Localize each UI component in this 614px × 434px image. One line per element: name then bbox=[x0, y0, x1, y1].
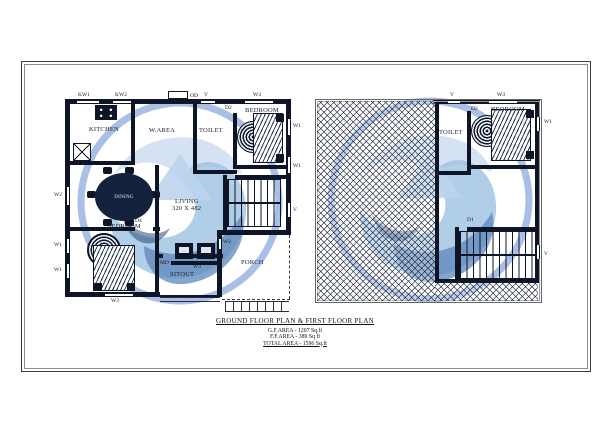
label-v: V bbox=[450, 92, 454, 98]
room-label-porch: PORCH bbox=[241, 259, 264, 266]
wall bbox=[131, 99, 135, 163]
crossed-box-icon bbox=[73, 143, 91, 161]
label-d2: D2 bbox=[225, 105, 232, 111]
window-marker-kw1 bbox=[77, 100, 99, 104]
label-md: MD bbox=[160, 260, 169, 266]
room-label-living-size: 320 X 482 bbox=[172, 205, 201, 212]
wall bbox=[193, 99, 197, 174]
label-d1: D1 bbox=[467, 217, 474, 223]
dining-table: DINING bbox=[95, 173, 153, 221]
room-label-kitchen: KITCHEN bbox=[89, 126, 119, 133]
nightstand bbox=[94, 283, 102, 291]
window-marker-v bbox=[287, 203, 291, 217]
sitout-chair bbox=[175, 243, 193, 259]
bed bbox=[491, 109, 531, 161]
porch-steps bbox=[225, 301, 289, 312]
window-marker-w1 bbox=[287, 157, 291, 173]
label-w2: W2 bbox=[54, 192, 62, 198]
room-label-toilet: TOILET bbox=[199, 127, 223, 134]
dining-room-label: DINING bbox=[114, 195, 134, 200]
porch-open-edge bbox=[289, 235, 290, 299]
window-marker-w1 bbox=[66, 239, 70, 253]
porch-open-edge bbox=[222, 299, 290, 300]
label-kw1: KW1 bbox=[78, 92, 90, 98]
window-marker-w3 bbox=[245, 100, 273, 104]
ground-floor-plan: DINING KITCHEN W.AREA TOILET BEDROOM LIV… bbox=[65, 99, 291, 315]
staircase bbox=[459, 231, 537, 279]
label-w3: W3 bbox=[497, 92, 505, 98]
room-label-bedroom2: BEDROOM bbox=[107, 223, 141, 230]
label-od: OD bbox=[190, 93, 198, 99]
wall bbox=[65, 161, 135, 165]
label-w3: W3 bbox=[193, 264, 201, 270]
label-v: V bbox=[293, 207, 297, 213]
nightstand bbox=[127, 283, 135, 291]
wall bbox=[233, 165, 291, 169]
nightstand bbox=[276, 154, 284, 162]
window-marker-w3 bbox=[489, 100, 517, 104]
window-marker-w3 bbox=[105, 293, 133, 297]
room-label-warea: W.AREA bbox=[149, 127, 175, 134]
ff-area-text: F.F.AREA - 389 Sq ft bbox=[150, 334, 440, 341]
wall bbox=[155, 227, 159, 297]
wall bbox=[233, 113, 237, 169]
label-w1: W1 bbox=[54, 267, 62, 273]
terrace-hatch bbox=[317, 101, 435, 301]
label-w1: W1 bbox=[293, 163, 301, 169]
terrace-hatch bbox=[435, 283, 538, 301]
label-w1: W1 bbox=[293, 123, 301, 129]
label-d4: D4 bbox=[135, 218, 142, 224]
drawing-canvas: DINING KITCHEN W.AREA TOILET BEDROOM LIV… bbox=[0, 0, 614, 434]
wall bbox=[217, 230, 291, 235]
label-w3: W3 bbox=[253, 92, 261, 98]
title-block: GROUND FLOOR PLAN & FIRST FLOOR PLAN G.F… bbox=[150, 317, 440, 347]
od-duct-box bbox=[168, 91, 188, 99]
label-v: V bbox=[544, 251, 548, 257]
first-floor-plan: TOILET BEDROOM V W3 D2 W1 D1 V bbox=[315, 99, 542, 303]
wall bbox=[155, 165, 159, 231]
total-area-text: TOTAL AREA - 1596 Sq.ft bbox=[150, 341, 440, 348]
label-kw2: KW2 bbox=[115, 92, 127, 98]
label-w1: W1 bbox=[544, 119, 552, 125]
window-marker-w2 bbox=[66, 187, 70, 205]
label-v: V bbox=[204, 92, 208, 98]
window-marker-v bbox=[201, 100, 215, 104]
room-label-toilet: TOILET bbox=[439, 129, 463, 136]
label-w1: W1 bbox=[54, 242, 62, 248]
room-label-bedroom: BEDROOM bbox=[491, 106, 525, 113]
label-w2: W2 bbox=[223, 239, 231, 245]
window-marker-v bbox=[448, 100, 460, 104]
window-marker-kw2 bbox=[113, 100, 131, 104]
sitout-chair bbox=[197, 243, 215, 259]
label-w3: W3 bbox=[111, 298, 119, 304]
room-label-living: LIVING bbox=[175, 198, 199, 205]
drawing-title: GROUND FLOOR PLAN & FIRST FLOOR PLAN bbox=[150, 317, 440, 325]
stove-icon bbox=[95, 105, 117, 120]
window-marker-w1 bbox=[287, 119, 291, 135]
room-label-sitout: SITOUT bbox=[170, 271, 194, 278]
room-label-bedroom1: BEDROOM bbox=[245, 107, 279, 114]
nightstand bbox=[526, 110, 534, 118]
nightstand bbox=[526, 151, 534, 159]
staircase bbox=[227, 179, 281, 227]
nightstand bbox=[276, 114, 284, 122]
label-d2: D2 bbox=[471, 106, 478, 112]
window-marker-w1 bbox=[536, 117, 540, 131]
dining-chair bbox=[103, 167, 112, 174]
window-marker-w2 bbox=[218, 239, 222, 249]
sitout-steps bbox=[160, 297, 220, 304]
label-d1: D1 bbox=[212, 170, 219, 176]
window-marker-w1 bbox=[66, 264, 70, 278]
wall bbox=[155, 254, 163, 258]
